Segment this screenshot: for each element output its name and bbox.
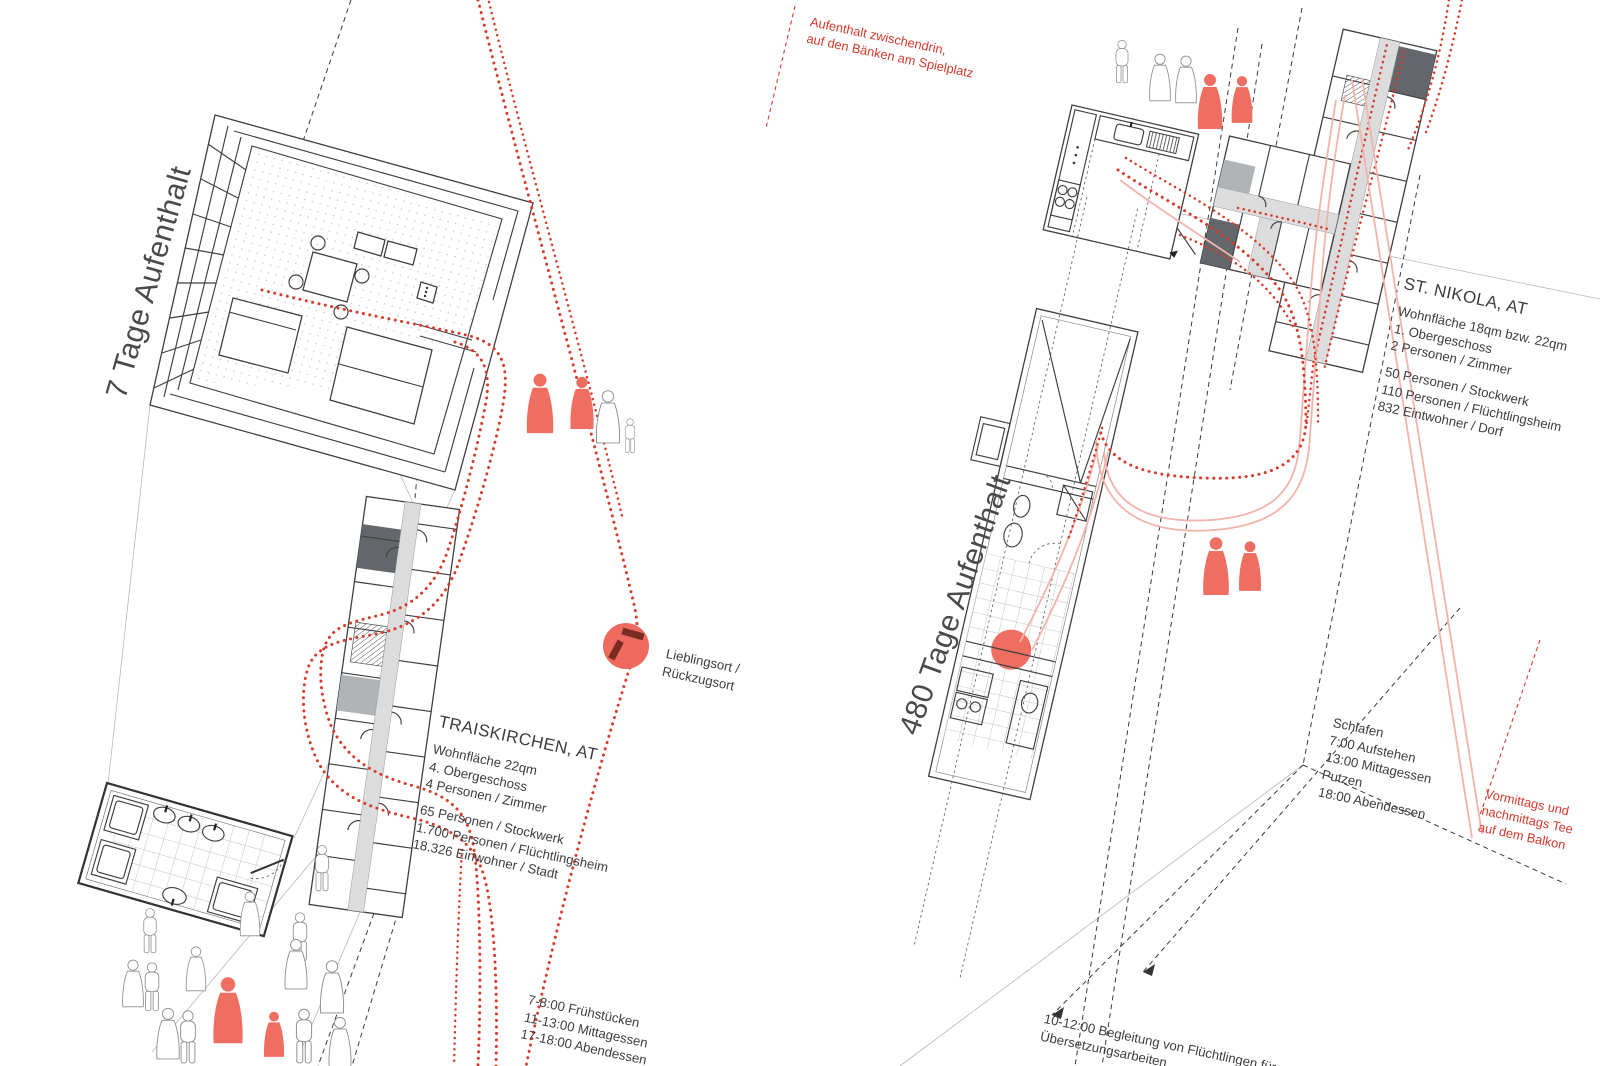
right-kitchen-floorplan [1043,105,1222,264]
diagram-canvas [0,0,1600,1066]
right-apartment-floorplan [857,185,1165,985]
diagram-poster: 7 Tage Aufenthalt 480 Tage Aufenthalt Au… [0,0,1600,1066]
left-room-axon-plan [150,115,533,490]
favorite-place-marker [603,623,649,669]
left-bathroom-floorplan [78,783,292,936]
